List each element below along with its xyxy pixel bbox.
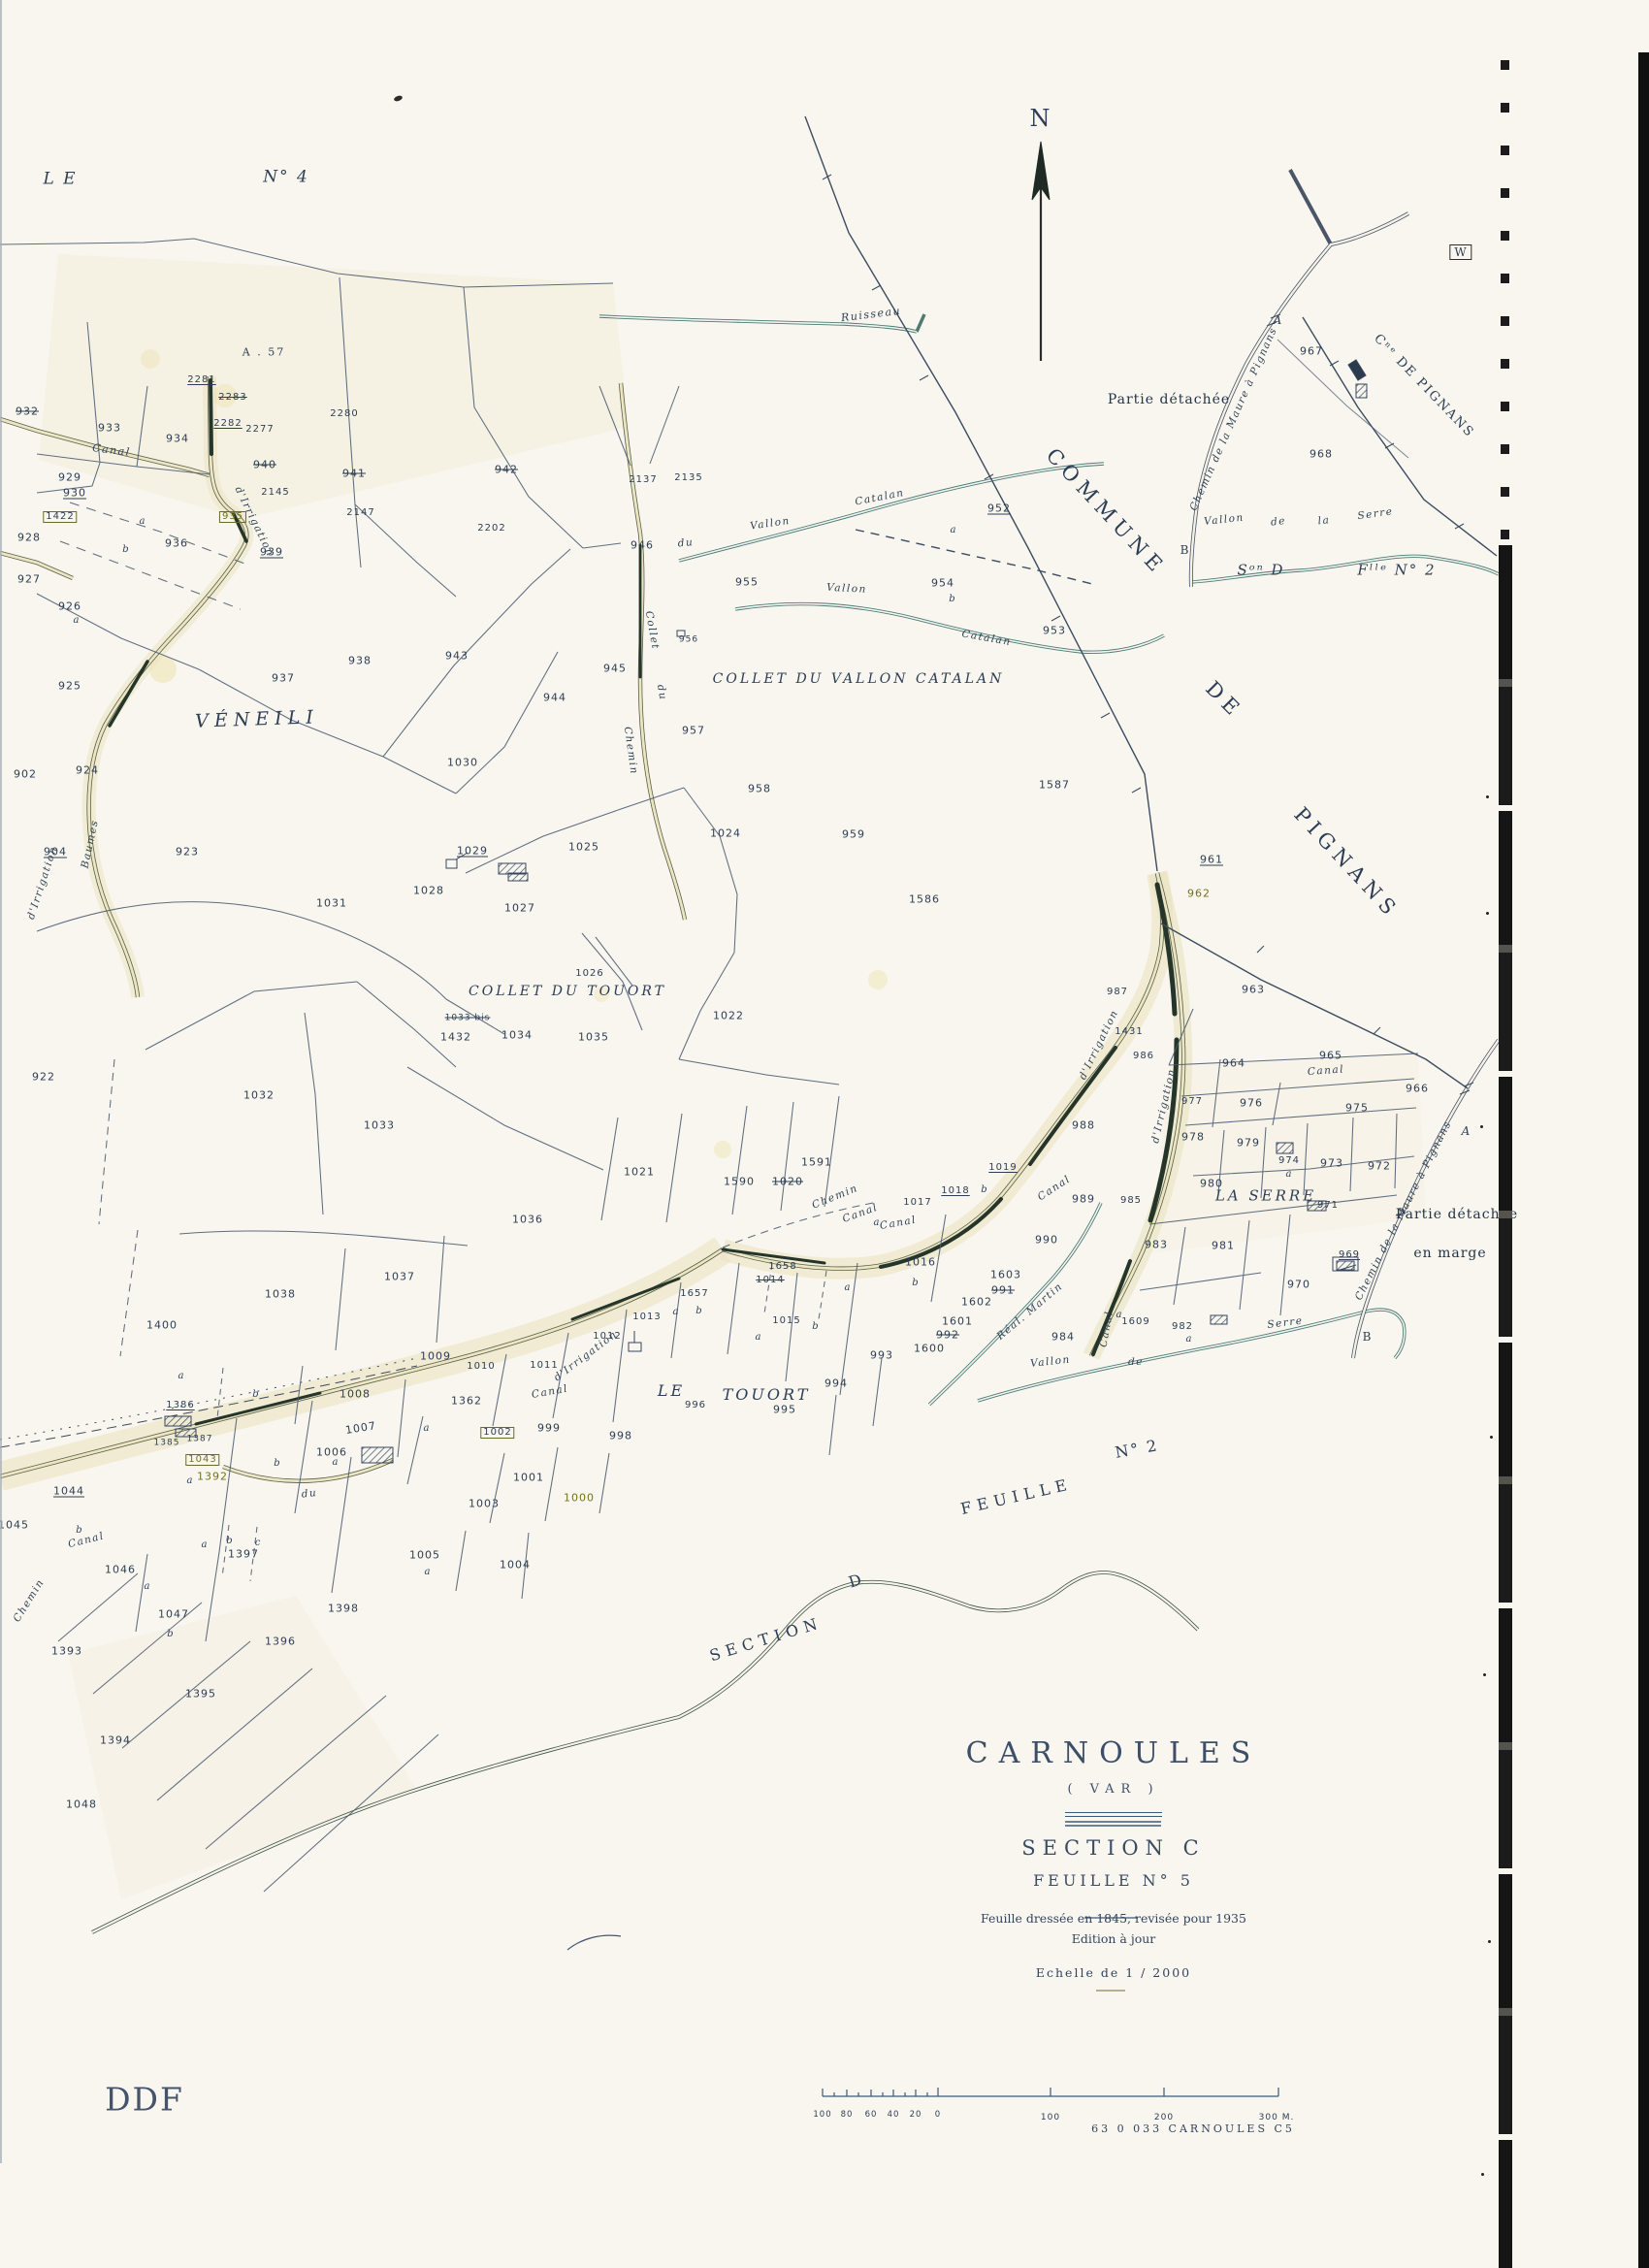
map-label: b (226, 1537, 233, 1546)
scan-edge-bar-inner-top (1501, 60, 1509, 545)
parcel-label: 1591 (801, 1157, 832, 1168)
parcel-label: 993 (870, 1350, 893, 1361)
title-block: CARNOULES ( VAR ) SECTION C FEUILLE N° 5… (958, 1736, 1269, 1980)
parcel-label: 978 (1181, 1132, 1205, 1143)
parcel-label: 932 (16, 406, 39, 417)
parcel-label: 966 (1406, 1084, 1429, 1094)
parcel-label: 1400 (146, 1320, 178, 1331)
map-label: A . 57 (242, 347, 285, 358)
parcel-label: 979 (1237, 1138, 1260, 1149)
scale-tick-label: 200 (1154, 2114, 1174, 2122)
parcel-label: 1046 (105, 1565, 136, 1575)
parcel-label: 971 (1317, 1201, 1339, 1211)
parcel-label: 923 (176, 847, 199, 858)
map-label: de (1271, 516, 1287, 528)
parcel-label: 1035 (578, 1032, 609, 1043)
parcel-label: 1034 (501, 1030, 533, 1041)
parcel-label: 1008 (339, 1389, 371, 1400)
parcel-label: 1025 (568, 842, 599, 853)
map-subtitle-dept: ( VAR ) (958, 1782, 1269, 1797)
sheet-code: 63 0 033 CARNOULES C5 (1067, 2122, 1319, 2135)
map-label: b (912, 1279, 919, 1288)
parcel-label: 957 (682, 726, 705, 736)
parcel-label: 970 (1287, 1280, 1310, 1290)
parcel-label: 2135 (674, 473, 702, 483)
parcel-label: 964 (1222, 1058, 1245, 1069)
map-label: a (673, 1308, 680, 1317)
parcel-label: 1385 (154, 1440, 180, 1448)
parcel-label: 1001 (513, 1473, 544, 1483)
map-label: a (145, 1582, 151, 1592)
map-label: LA SERRE (1215, 1189, 1316, 1204)
map-label: b (695, 1307, 702, 1316)
map-label: c (255, 1539, 262, 1548)
parcel-label: 2147 (346, 508, 374, 518)
parcel-label: 1010 (467, 1362, 495, 1372)
scale-bar (823, 2088, 1278, 2096)
parcel-label: 1432 (440, 1032, 471, 1043)
parcel-label: 1037 (384, 1272, 415, 1282)
parcel-label: 1020 (772, 1177, 803, 1187)
parcel-label: 1587 (1039, 780, 1070, 791)
parcel-label: 1396 (265, 1636, 296, 1647)
scan-edge-bar-inner (1499, 545, 1512, 2268)
parcel-label: 1043 (185, 1454, 219, 1466)
map-label: a (1286, 1170, 1293, 1180)
parcel-label: 927 (17, 574, 41, 585)
parcel-label: 1657 (680, 1289, 708, 1299)
map-label: Vallon (826, 583, 867, 596)
map-label: a (187, 1476, 194, 1486)
map-label: du (301, 1488, 317, 1500)
parcel-label: 1395 (185, 1689, 216, 1700)
map-canvas (0, 0, 1649, 2268)
sheet-label: FEUILLE N° 5 (958, 1871, 1269, 1890)
parcel-label: 1026 (575, 969, 603, 979)
parcel-label: 989 (1072, 1194, 1095, 1205)
parcel-label: 953 (1043, 626, 1066, 636)
scale-tick-label: 0 (935, 2111, 941, 2120)
parcel-label: 1030 (447, 758, 478, 768)
parcel-label: 995 (773, 1405, 796, 1415)
parcel-label: 983 (1145, 1240, 1168, 1250)
parcel-label: 1048 (66, 1799, 97, 1810)
revision-note: Feuille dressée en 1845, revisée pour 19… (958, 1911, 1269, 1926)
parcel-label: 2202 (477, 524, 505, 534)
map-label: a (951, 526, 957, 535)
parcel-label: 969 (1339, 1250, 1360, 1260)
parcel-label: 925 (58, 681, 81, 692)
parcel-label: 924 (76, 765, 99, 776)
parcel-label: 1393 (51, 1646, 82, 1657)
parcel-label: 1609 (1121, 1317, 1149, 1327)
parcel-label: 1038 (265, 1289, 296, 1300)
parcel-label: 988 (1072, 1120, 1095, 1131)
parcel-label: 1047 (158, 1609, 189, 1620)
parcel-label: 1017 (903, 1198, 931, 1208)
map-label: a (178, 1372, 185, 1381)
parcel-label: 1431 (1115, 1027, 1143, 1037)
north-arrow (1032, 142, 1050, 361)
parcel-label: 934 (166, 434, 189, 444)
parcel-label: 1422 (43, 511, 77, 523)
parcel-label: 1044 (53, 1486, 84, 1497)
map-label: a (74, 616, 81, 626)
parcel-label: 985 (1120, 1196, 1142, 1206)
map-label: b (949, 595, 955, 604)
parcel-label: 1029 (457, 846, 488, 857)
parcel-label: 1027 (504, 903, 535, 914)
map-label: du (677, 537, 694, 549)
parcel-label: 935 (219, 511, 246, 523)
parcel-label: 962 (1187, 889, 1211, 899)
parcel-label: 991 (991, 1285, 1015, 1296)
parcel-label: 940 (253, 460, 276, 470)
parcel-label: 2281 (187, 375, 215, 385)
parcel-label: 2283 (218, 393, 246, 403)
map-label: en marge (1413, 1247, 1486, 1260)
parcel-label: 954 (931, 578, 954, 589)
map-label: DDF (105, 2084, 184, 2116)
parcel-label: 992 (936, 1330, 959, 1341)
map-label: Sᵒⁿ D (1238, 564, 1285, 578)
map-title: CARNOULES (958, 1736, 1269, 1770)
parcel-label: 1398 (328, 1604, 359, 1614)
map-label: a (202, 1540, 209, 1550)
parcel-label: 902 (14, 769, 37, 780)
parcel-label: 1003 (469, 1499, 500, 1509)
parcel-label: 1021 (624, 1167, 655, 1178)
parcel-label: 943 (445, 651, 469, 662)
parcel-label: 1032 (243, 1090, 275, 1101)
map-label: a (425, 1568, 432, 1577)
parcel-label: 994 (824, 1378, 848, 1389)
scan-edge-bar-outer (1638, 52, 1649, 2268)
parcel-label: 1601 (942, 1316, 973, 1327)
parcel-label: 1018 (941, 1186, 969, 1196)
parcel-label: 941 (342, 469, 366, 479)
parcel-label: 929 (58, 472, 81, 483)
parcel-label: 987 (1107, 988, 1128, 997)
parcel-label: 1362 (451, 1396, 482, 1407)
map-label: W (1449, 244, 1471, 260)
parcel-label: 955 (735, 577, 759, 588)
parcel-label: 1392 (197, 1472, 228, 1482)
parcel-label: 1036 (512, 1215, 543, 1225)
parcel-label: 990 (1035, 1235, 1058, 1246)
parcel-label: 1386 (166, 1401, 194, 1410)
map-label: a (140, 517, 146, 527)
map-label: TOUORT (723, 1387, 811, 1403)
map-label: A (1462, 1125, 1472, 1137)
map-sheet: L EN° 4NA . 57RuisseauPartie détachéeChe… (0, 0, 1649, 2268)
parcel-label: 1004 (500, 1560, 531, 1571)
parcel-label: 973 (1320, 1158, 1343, 1169)
scale-tick-label: 80 (841, 2111, 854, 2120)
parcel-label: 974 (1278, 1156, 1300, 1166)
scale-tick-label: 20 (910, 2111, 922, 2120)
parcel-label: 956 (679, 636, 698, 645)
parcel-label: 1014 (756, 1276, 784, 1285)
map-label: a (424, 1424, 431, 1434)
parcel-label: 1006 (316, 1447, 347, 1458)
parcel-label: 986 (1133, 1052, 1154, 1061)
section-label: SECTION C (958, 1836, 1269, 1860)
parcel-label: 1022 (713, 1011, 744, 1021)
parcel-label: 965 (1319, 1051, 1342, 1061)
parcel-label: 1024 (710, 828, 741, 839)
parcel-label: 996 (685, 1401, 706, 1410)
scale-tick-label: 300 M. (1259, 2114, 1295, 2122)
parcel-label: 1031 (316, 898, 347, 909)
parcel-label: 967 (1300, 346, 1323, 357)
parcel-label: 928 (17, 533, 41, 543)
parcel-label: 1045 (0, 1520, 29, 1531)
parcel-label: 959 (842, 829, 865, 840)
parcel-label: 1002 (480, 1427, 514, 1439)
parcel-label: 1028 (413, 886, 444, 896)
parcel-label: 1009 (420, 1351, 451, 1362)
parcel-label: 938 (348, 656, 372, 666)
parcel-label: 981 (1212, 1241, 1235, 1251)
parcel-label: 1603 (990, 1270, 1021, 1280)
map-label: b (981, 1185, 987, 1195)
map-label: b (812, 1322, 819, 1332)
map-label: N (1030, 107, 1052, 130)
map-label: VÉNEILI (195, 708, 319, 730)
parcel-label: 952 (987, 503, 1011, 514)
map-label: COLLET DU TOUORT (469, 985, 666, 998)
map-label: b (274, 1459, 280, 1469)
scale-tick-label: 100 (813, 2111, 831, 2120)
scale-tick-label: 40 (888, 2111, 900, 2120)
map-label: A (1274, 314, 1284, 326)
parcel-label: 1590 (724, 1177, 755, 1187)
map-label: a (1186, 1335, 1193, 1345)
map-label: Canal (1308, 1064, 1345, 1077)
parcel-label: 1019 (988, 1163, 1017, 1173)
map-label: a (874, 1218, 881, 1228)
parcel-label: 944 (543, 693, 566, 703)
parcel-label: 1015 (772, 1316, 800, 1326)
map-label: du (655, 684, 667, 701)
parcel-label: 1397 (228, 1549, 259, 1560)
parcel-label: 1658 (768, 1262, 796, 1272)
parcel-label: 1394 (100, 1735, 131, 1746)
map-label: Partie détachée (1108, 393, 1230, 406)
parcel-label: 1013 (632, 1312, 661, 1322)
map-label: B (1363, 1331, 1374, 1343)
parcel-label: 963 (1242, 985, 1265, 995)
double-rule (1065, 1812, 1162, 1817)
parcel-label: 1016 (905, 1257, 936, 1268)
map-label: a (845, 1283, 852, 1293)
parcel-label: 975 (1345, 1103, 1369, 1114)
parcel-label: 972 (1368, 1161, 1391, 1172)
parcel-label: 984 (1051, 1332, 1075, 1343)
parcel-label: 976 (1240, 1098, 1263, 1109)
scale-label: Echelle de 1 / 2000 (958, 1965, 1269, 1980)
map-label: b (167, 1630, 174, 1639)
parcel-label: 958 (748, 784, 771, 794)
parcel-label: 982 (1172, 1322, 1193, 1332)
parcel-label: 2280 (330, 409, 358, 419)
parcel-label: 2277 (245, 425, 274, 435)
parcel-label: 2282 (213, 419, 242, 429)
parcel-label: 1387 (187, 1436, 213, 1444)
map-label: N° 4 (263, 170, 309, 186)
parcel-label: 977 (1181, 1097, 1203, 1107)
parcel-label: 942 (495, 465, 518, 475)
edition-note: Edition à jour (958, 1931, 1269, 1946)
parcel-label: 945 (603, 664, 627, 674)
map-label: a (756, 1333, 762, 1343)
map-label: de (1128, 1357, 1144, 1368)
parcel-label: 1005 (409, 1550, 440, 1561)
map-label: b (252, 1390, 259, 1400)
parcel-label: 1033 (364, 1120, 395, 1131)
parcel-label: 961 (1200, 855, 1223, 865)
parcel-label: 936 (165, 538, 188, 549)
parcel-label: 933 (98, 423, 121, 434)
parcel-label: 930 (63, 488, 86, 499)
parcel-label: 1586 (909, 894, 940, 905)
map-label: LE (658, 1383, 685, 1399)
map-label: a (333, 1458, 339, 1468)
parcel-label: 922 (32, 1072, 55, 1083)
scale-tick-label: 60 (865, 2111, 878, 2120)
map-label: b (122, 545, 129, 555)
parcel-label: 946 (630, 540, 654, 551)
parcel-label: 937 (272, 673, 295, 684)
parcel-label: 1000 (564, 1493, 595, 1504)
scan-speck (1486, 795, 1489, 798)
parcel-label: 999 (537, 1423, 561, 1434)
map-label: COLLET DU VALLON CATALAN (713, 672, 1005, 686)
parcel-label: 968 (1309, 449, 1333, 460)
parcel-label: 926 (58, 601, 81, 612)
map-label: la (1317, 515, 1331, 527)
parcel-label: 2137 (629, 475, 657, 485)
parcel-label: 1602 (961, 1297, 992, 1308)
map-label: B (1180, 544, 1191, 556)
scan-edge-line-left (0, 0, 2, 2163)
parcel-label: 2145 (261, 488, 289, 498)
scale-tick-label: 100 (1041, 2114, 1060, 2122)
parcel-label: 998 (609, 1431, 632, 1442)
map-label: L E (43, 172, 77, 188)
map-label: Fˡˡᵉ N° 2 (1357, 564, 1436, 578)
parcel-label: 1600 (914, 1344, 945, 1354)
map-label: b (76, 1526, 82, 1536)
parcel-label: 1033 bis (445, 1015, 491, 1023)
parcel-label: 1011 (530, 1361, 558, 1371)
